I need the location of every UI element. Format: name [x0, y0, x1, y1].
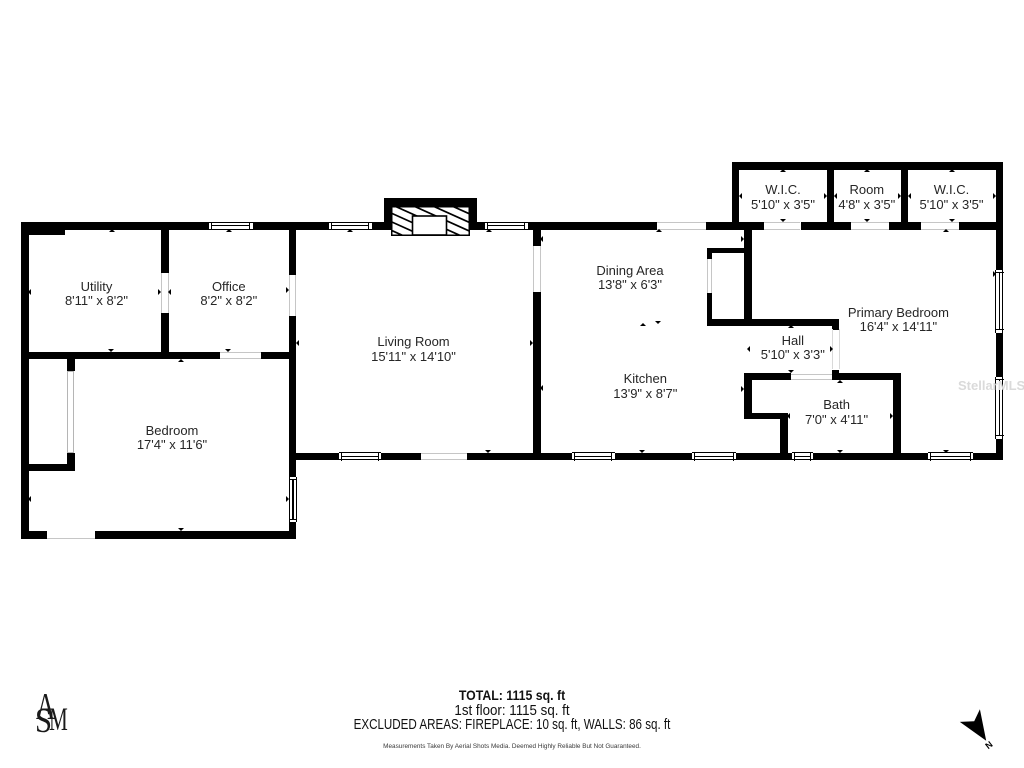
svg-text:N: N — [983, 739, 994, 751]
